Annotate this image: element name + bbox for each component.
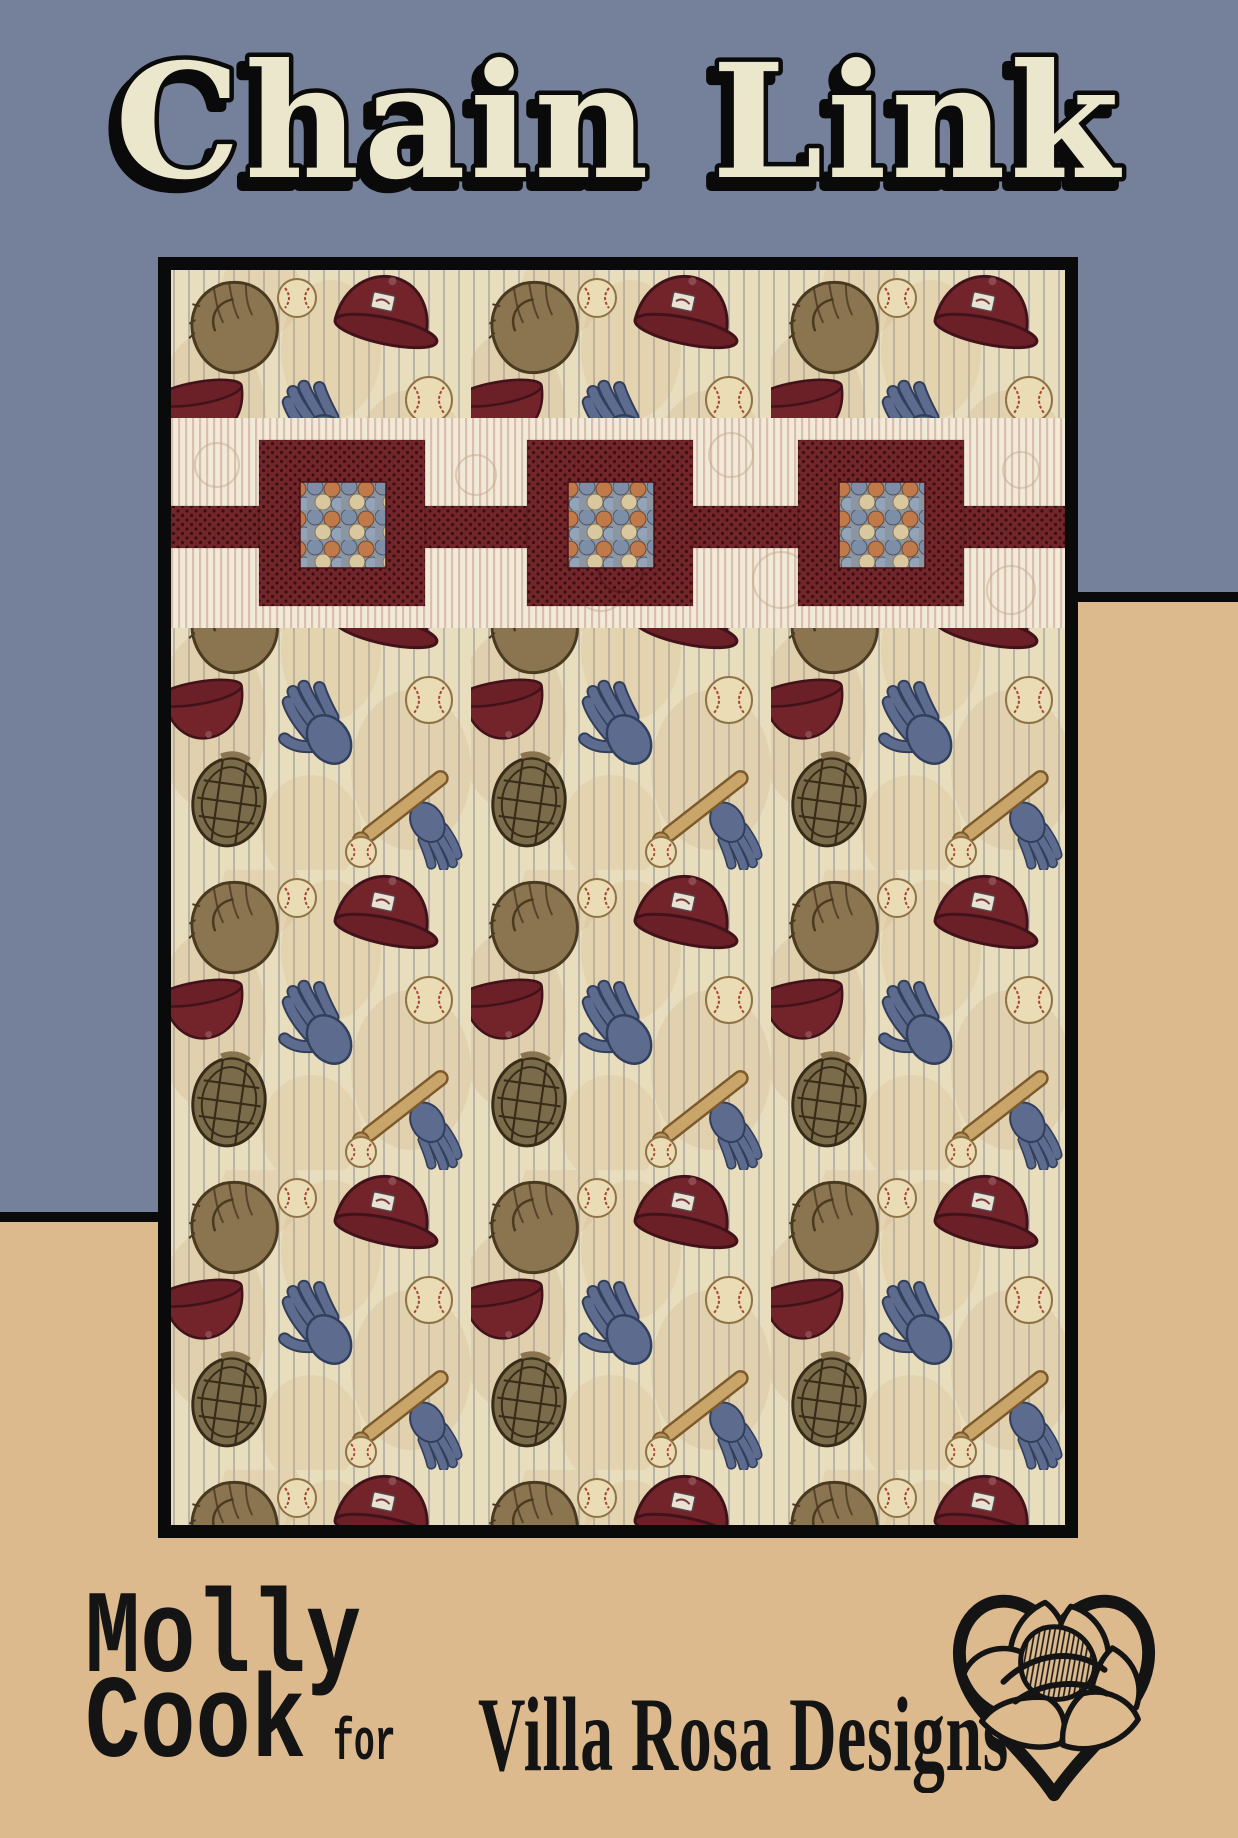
title-banner: Chain Link Chain Link [0, 0, 1238, 250]
author-connector: for [333, 1716, 396, 1774]
quilt-fabric-image [171, 270, 1065, 1525]
quilt-photo [158, 257, 1078, 1538]
pattern-cover: { "title": "Chain Link", "author": { "fi… [0, 0, 1238, 1838]
chain-band [171, 418, 1065, 628]
page-title: Chain Link [115, 30, 1123, 215]
rose-in-heart-icon [946, 1583, 1164, 1828]
author-last-name: Cook [85, 1667, 306, 1785]
brand-name: Villa Rosa Designs [478, 1682, 1009, 1788]
